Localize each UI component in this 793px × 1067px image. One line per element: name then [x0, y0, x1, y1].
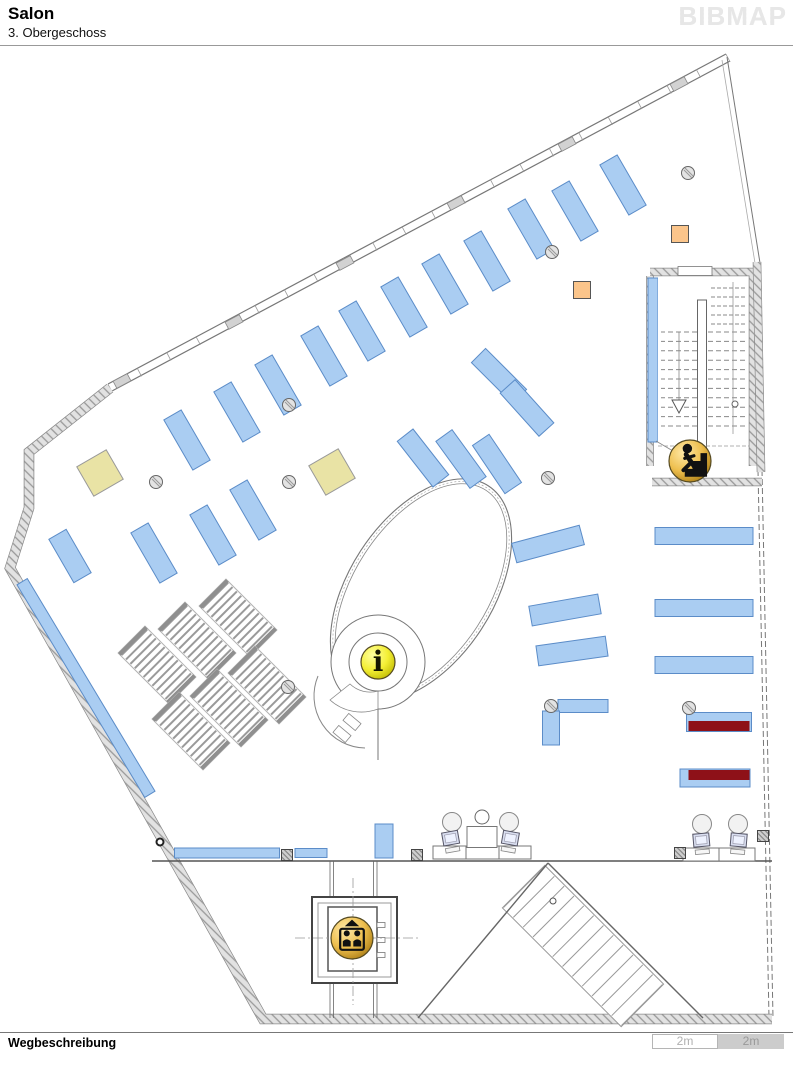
bookshelf — [655, 528, 753, 545]
map-rect — [672, 226, 689, 243]
bookshelf — [190, 505, 236, 565]
column — [683, 702, 696, 715]
bookshelf — [648, 278, 658, 442]
column — [682, 167, 695, 180]
bookshelf — [175, 848, 280, 858]
floor-plan-svg: i — [0, 0, 793, 1067]
bookshelf — [552, 181, 598, 241]
bookshelf — [655, 657, 753, 674]
map-rect — [343, 713, 361, 730]
info-marker-icon[interactable]: i — [361, 645, 395, 679]
bookshelf — [375, 824, 393, 858]
svg-text:i: i — [373, 645, 384, 678]
map-rect — [467, 827, 497, 848]
bookshelf — [558, 700, 608, 713]
bookshelf — [295, 849, 327, 858]
map-rect — [678, 267, 712, 276]
bookshelf — [301, 326, 347, 386]
wall-column — [675, 848, 686, 859]
floor-plan-map[interactable]: i — [0, 0, 793, 1067]
bookshelf — [543, 711, 560, 745]
map-scale-bar: 2m 2m — [652, 1034, 784, 1049]
bookshelf — [464, 231, 510, 291]
bookshelf — [436, 430, 486, 489]
elevator-marker-icon[interactable] — [331, 917, 373, 959]
map-rect — [574, 282, 591, 299]
map-rect — [377, 923, 385, 928]
column — [283, 476, 296, 489]
bookshelf — [214, 382, 260, 442]
footer-bar: Wegbeschreibung 2m 2m — [0, 1032, 793, 1067]
map-rect — [309, 449, 355, 495]
map-rect — [689, 770, 750, 780]
bookshelf — [655, 600, 753, 617]
bibmap-logo: BIBMAP — [678, 1, 787, 32]
bookshelf — [131, 523, 177, 583]
column — [542, 472, 555, 485]
floor-subtitle: 3. Obergeschoss — [8, 25, 106, 40]
bookshelf — [381, 277, 427, 337]
bookshelf — [49, 529, 91, 582]
column — [545, 700, 558, 713]
wall-column — [758, 831, 769, 842]
map-rect — [689, 721, 750, 731]
column — [282, 681, 295, 694]
wall-column — [282, 850, 293, 861]
bookshelf — [500, 380, 554, 436]
bibmap-page: Salon 3. Obergeschoss BIBMAP i Wegbeschr… — [0, 0, 793, 1067]
page-title: Salon — [8, 4, 54, 24]
column — [150, 476, 163, 489]
bookshelf — [17, 579, 155, 798]
bookshelf — [339, 301, 385, 361]
bookshelf — [529, 594, 601, 626]
map-rect — [698, 300, 707, 448]
map-rect — [77, 450, 123, 496]
bookshelf — [164, 410, 210, 470]
bookshelf — [422, 254, 468, 314]
scale-segment-dark: 2m — [718, 1034, 784, 1049]
stairs-marker-icon[interactable] — [669, 440, 711, 482]
column — [546, 246, 559, 259]
header-bar: Salon 3. Obergeschoss BIBMAP — [0, 0, 793, 46]
bookshelf — [536, 636, 608, 666]
map-rect — [377, 953, 385, 958]
map-rect — [333, 725, 351, 742]
bookshelf — [600, 155, 646, 215]
bookshelf — [230, 480, 276, 540]
scale-segment-light: 2m — [652, 1034, 718, 1049]
route-description-label: Wegbeschreibung — [8, 1036, 116, 1050]
bookshelf — [472, 434, 521, 493]
wall-column — [412, 850, 423, 861]
column — [283, 399, 296, 412]
bookshelf — [512, 525, 585, 562]
